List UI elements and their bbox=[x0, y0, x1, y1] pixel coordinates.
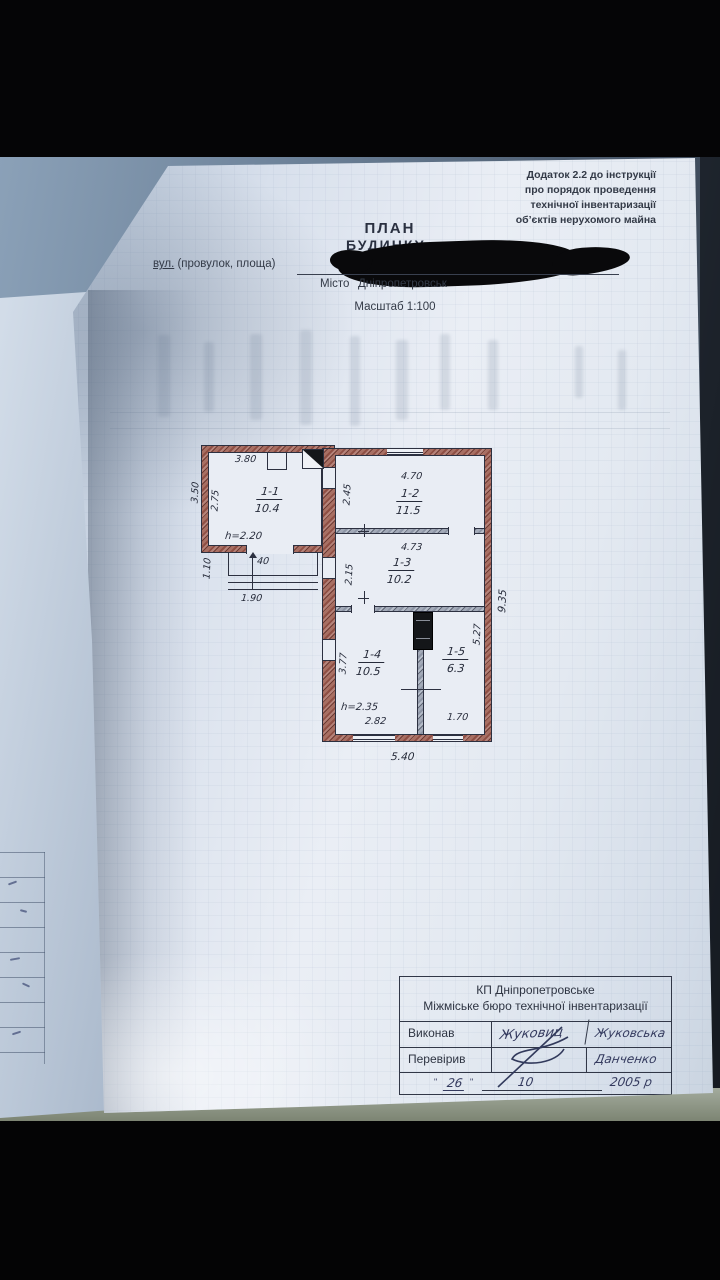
bleed-through bbox=[575, 346, 583, 398]
room-1-1-area: 10.4 bbox=[254, 502, 280, 515]
dim-room12-depth: 2.45 bbox=[342, 483, 354, 506]
door-opening bbox=[448, 527, 475, 535]
dim-porch-step: 40 bbox=[256, 556, 269, 567]
date-year: 2005 р bbox=[609, 1075, 653, 1089]
chimney-cross-icon bbox=[358, 524, 369, 537]
dim-room14-depth: 3.77 bbox=[338, 652, 350, 675]
bleed-through-line bbox=[110, 412, 670, 413]
page-title: ПЛАН bbox=[300, 220, 480, 237]
room-1-3-area: 10.2 bbox=[386, 573, 412, 586]
dim-porch-width: 1.90 bbox=[240, 593, 262, 604]
address-label: вул. (провулок, площа) bbox=[153, 258, 275, 270]
door-opening bbox=[323, 639, 335, 661]
dim-room11-height: h=2.20 bbox=[224, 531, 262, 542]
bleed-through bbox=[440, 334, 450, 410]
room-1-4-id: 1-4 bbox=[358, 648, 386, 663]
bleed-through bbox=[488, 340, 498, 410]
gas-stove-icon bbox=[267, 452, 287, 470]
dim-left-outer: 3.50 bbox=[190, 481, 202, 504]
bleed-through bbox=[204, 342, 214, 412]
window-opening bbox=[433, 735, 463, 742]
dark-background-bottom bbox=[0, 1121, 720, 1280]
furnace-icon bbox=[413, 612, 433, 650]
entrance-arrow-icon bbox=[252, 555, 253, 589]
city-value: Дніпропетровськ bbox=[358, 278, 447, 290]
address-rest-label: (провулок, площа) bbox=[174, 258, 275, 270]
appendix-note: Додаток 2.2 до інструкції про порядок пр… bbox=[396, 168, 656, 228]
window-opening bbox=[353, 735, 395, 742]
appendix-note-line: технічної інвентаризації bbox=[396, 198, 656, 213]
appendix-note-line: про порядок проведення bbox=[396, 183, 656, 198]
photo-of-document: Додаток 2.2 до інструкції про порядок пр… bbox=[0, 0, 720, 1280]
room-1-3-id: 1-3 bbox=[388, 556, 416, 571]
dim-room13-width: 4.73 bbox=[400, 542, 422, 553]
org-name: КП Дніпропетровське Міжміське бюро техні… bbox=[400, 977, 671, 1021]
city-label: Місто bbox=[320, 278, 349, 290]
door-opening bbox=[323, 467, 335, 489]
org-name-line2: Міжміське бюро технічної інвентаризації bbox=[400, 998, 671, 1014]
entrance-arrow-head bbox=[249, 552, 257, 558]
window-opening bbox=[387, 448, 423, 455]
quote-mark: ʺ bbox=[470, 1077, 473, 1087]
stamp-table: КП Дніпропетровське Міжміське бюро техні… bbox=[399, 976, 672, 1095]
appendix-note-line: Додаток 2.2 до інструкції bbox=[396, 168, 656, 183]
org-name-line1: КП Дніпропетровське bbox=[400, 982, 671, 998]
dim-room13-depth: 2.15 bbox=[344, 563, 356, 586]
executor-label: Виконав bbox=[400, 1022, 492, 1047]
date-day: 26 bbox=[443, 1076, 467, 1091]
bleed-through-line bbox=[110, 428, 670, 429]
executor-name: Жуковська bbox=[585, 1022, 673, 1047]
bleed-through bbox=[300, 330, 312, 425]
door-opening bbox=[401, 689, 441, 690]
dim-room14-height: h=2.35 bbox=[340, 702, 378, 713]
porch-step bbox=[228, 589, 318, 590]
bleed-through bbox=[618, 350, 626, 410]
room-1-4-area: 10.5 bbox=[355, 665, 381, 678]
chimney-cross-icon bbox=[358, 591, 369, 604]
bleed-through bbox=[158, 335, 170, 417]
dim-room11-depth: 2.75 bbox=[210, 489, 222, 512]
underlying-table-lines bbox=[0, 852, 45, 1064]
heating-stove-icon bbox=[302, 449, 324, 469]
door-opening bbox=[323, 557, 335, 579]
dark-background-top bbox=[0, 0, 720, 157]
room-1-5-area: 6.3 bbox=[446, 662, 465, 675]
quote-mark: ʺ bbox=[434, 1077, 437, 1087]
bleed-through bbox=[396, 340, 408, 420]
floor-plan: 3.80 3.50 2.75 1-1 10.4 h=2.20 1.10 40 1… bbox=[195, 443, 517, 775]
dim-right-outer: 9.35 bbox=[496, 588, 509, 613]
dim-room15-width: 1.70 bbox=[446, 712, 468, 723]
verifier-name: Данченко bbox=[585, 1048, 673, 1072]
dim-bottom-outer: 5.40 bbox=[390, 751, 415, 763]
room-1-2-id: 1-2 bbox=[396, 487, 424, 502]
dim-room15-depth: 5.27 bbox=[472, 623, 484, 646]
room-1-1-id: 1-1 bbox=[256, 485, 284, 500]
room-1-5-id: 1-5 bbox=[442, 645, 470, 660]
dim-room14-width: 2.82 bbox=[364, 716, 386, 727]
porch-step bbox=[228, 582, 318, 583]
dim-porch-height: 1.10 bbox=[202, 557, 214, 580]
room-1-2-area: 11.5 bbox=[395, 504, 421, 517]
bleed-through bbox=[250, 334, 262, 420]
address-street-label: вул. bbox=[153, 258, 174, 270]
scale-note: Масштаб 1:100 bbox=[340, 301, 450, 313]
address-blank-line bbox=[297, 259, 619, 275]
door-opening bbox=[351, 605, 375, 613]
porch-outline bbox=[228, 553, 318, 576]
verifier-signature bbox=[480, 1023, 590, 1091]
dim-room11-width: 3.80 bbox=[234, 454, 256, 465]
verifier-label: Перевірив bbox=[400, 1048, 492, 1072]
dim-room12-width: 4.70 bbox=[400, 471, 422, 482]
